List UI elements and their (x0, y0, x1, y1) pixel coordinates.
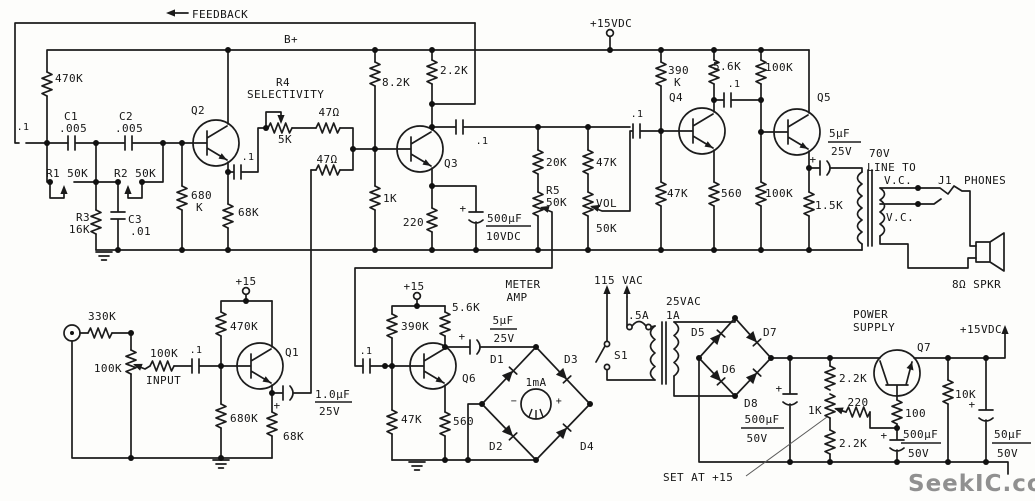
label-cap-q1-in: .1 (190, 345, 203, 356)
label-input: INPUT (146, 374, 181, 387)
label-vol-value: 50K (596, 222, 617, 235)
label-25v-q5: 25V (831, 145, 852, 158)
input-jack-symbol (64, 325, 80, 341)
label-supply: SUPPLY (853, 321, 895, 334)
label-vol: VOL (596, 197, 617, 210)
label-500uf: 500μF (487, 212, 522, 225)
plus15-terminal-q6 (414, 293, 421, 300)
label-47ohm-bottom: 47Ω (316, 153, 337, 166)
label-cap-input: .1 (17, 122, 30, 133)
label-1uf: 1.0μF (315, 388, 350, 401)
label-vc-1: V.C. (884, 174, 912, 187)
label-meter-plus: + (556, 396, 562, 407)
label-c3-value: .01 (130, 225, 151, 238)
label-1ma: 1mA (525, 376, 546, 389)
label-1k-q3: 1K (383, 192, 397, 205)
label-c1-value: .005 (59, 122, 87, 135)
label-100k-pot: 100K (94, 362, 122, 375)
label-d6: D6 (722, 363, 736, 376)
label-fuse: .5A (628, 309, 649, 322)
label-cap-q3-out: .1 (476, 136, 489, 147)
label-r1: R1 50K (46, 167, 88, 180)
feedback-arrow-icon (166, 9, 175, 16)
label-68k-q2: 68K (238, 206, 259, 219)
watermark: SeekIC.com (908, 471, 1035, 497)
transistor-q1-symbol (237, 343, 283, 389)
label-50uf: 50μF (994, 428, 1022, 441)
label-d1: D1 (490, 353, 504, 366)
label-115vac: 115 VAC (594, 274, 643, 287)
label-q4: Q4 (669, 91, 683, 104)
label-220-psu: 220 (847, 396, 868, 409)
label-plus15-q6: +15 (403, 280, 424, 293)
output-transformer-symbol (858, 170, 885, 246)
label-meter-minus: − (511, 396, 517, 407)
label-470k: 470K (55, 72, 83, 85)
label-70v: 70V (869, 147, 890, 160)
label-5-6k-q6: 5.6K (452, 301, 480, 314)
meter-movement-symbol (521, 389, 551, 419)
transistor-q6-symbol (410, 343, 456, 389)
label-560-q4: 560 (721, 187, 742, 200)
label-d2: D2 (489, 440, 503, 453)
power-transformer-symbol (651, 322, 679, 384)
label-50v2: 50V (908, 447, 929, 460)
label-1a: 1A (666, 309, 680, 322)
label-560-q6: 560 (453, 415, 474, 428)
label-cap-q6-in: .1 (360, 346, 373, 357)
label-47ohm-top: 47Ω (318, 106, 339, 119)
label-plus-500uf2: + (880, 429, 887, 442)
label-25v-1uf: 25V (319, 405, 340, 418)
label-5uf-q6: 5μF (492, 314, 513, 327)
label-390k-q6: 390K (401, 320, 429, 333)
label-phones: PHONES (964, 174, 1006, 187)
label-plus15-q1: +15 (235, 275, 256, 288)
label-selectivity: SELECTIVITY (247, 88, 324, 101)
label-1k-psu: 1K (808, 404, 822, 417)
label-r2: R2 50K (114, 167, 156, 180)
label-j1: J1 (938, 174, 952, 187)
label-q6: Q6 (462, 372, 476, 385)
label-20k: 20K (546, 156, 567, 169)
label-feedback: FEEDBACK (192, 8, 248, 21)
label-1-5k: 1.5K (815, 199, 843, 212)
label-cap-q4q5: .1 (728, 79, 741, 90)
transistor-q3-symbol (397, 126, 443, 172)
label-plus-500uf1: + (775, 382, 782, 395)
label-680k-q1: 680K (230, 412, 258, 425)
label-cap-q2: .1 (242, 152, 255, 163)
label-d5: D5 (691, 326, 705, 339)
label-r5-value: 50K (546, 196, 567, 209)
label-b-plus: B+ (284, 33, 298, 46)
label-5uf-q5: 5μF (829, 127, 850, 140)
plus15vdc-terminal (607, 30, 614, 37)
transistor-q2-symbol (193, 120, 239, 166)
label-100k-input: 100K (150, 347, 178, 360)
label-d4: D4 (580, 440, 594, 453)
schematic-canvas: FEEDBACK B+ +15VDC .1 470K C1 .005 C2 .0… (0, 0, 1035, 501)
switch-s1-symbol (604, 341, 609, 369)
label-50v1: 50V (746, 432, 767, 445)
plus15-terminal-q1 (243, 288, 250, 295)
label-set-at: SET AT +15 (663, 471, 733, 484)
label-spkr: 8Ω SPKR (952, 278, 1001, 291)
label-68k-q1: 68K (283, 430, 304, 443)
label-q3: Q3 (444, 157, 458, 170)
label-5k: 5K (278, 133, 292, 146)
label-15vdc-out: +15VDC (960, 323, 1002, 336)
label-plus-5uf-q6: + (458, 330, 465, 343)
labels: FEEDBACK B+ +15VDC .1 470K C1 .005 C2 .0… (17, 8, 1035, 497)
label-amp: AMP (506, 291, 527, 304)
label-470k-q1: 470K (230, 320, 258, 333)
transistor-q5-symbol (774, 109, 820, 155)
label-330k: 330K (88, 310, 116, 323)
label-power: POWER (853, 308, 888, 321)
label-plus-50uf: + (968, 398, 975, 411)
label-8-2k: 8.2K (382, 76, 410, 89)
label-c2-value: .005 (115, 122, 143, 135)
label-d3: D3 (564, 353, 578, 366)
speaker-icon (976, 233, 1004, 271)
transistor-q4-symbol (679, 108, 725, 154)
fuse-symbol (627, 324, 651, 329)
label-15vdc-top: +15VDC (590, 17, 632, 30)
label-q2: Q2 (191, 104, 205, 117)
label-220-q3: 220 (403, 216, 424, 229)
label-plus-1uf: + (273, 399, 280, 412)
label-cap-q4-in: .1 (631, 109, 644, 120)
label-25vac: 25VAC (666, 295, 701, 308)
label-2-2k-top: 2.2K (839, 372, 867, 385)
ground-symbols (96, 252, 425, 470)
label-5-6k-q4: 5.6K (713, 60, 741, 73)
label-line-to: LINE TO (867, 161, 916, 174)
label-2-2k-q3: 2.2K (440, 64, 468, 77)
label-q5: Q5 (817, 91, 831, 104)
plus15vdc-arrow-icon (1001, 325, 1008, 334)
label-47k-vol: 47K (596, 156, 617, 169)
label-d8: D8 (744, 397, 758, 410)
label-100: 100 (905, 407, 926, 420)
label-47k-q4: 47K (667, 187, 688, 200)
label-390-k: K (674, 76, 681, 89)
label-q1: Q1 (285, 346, 299, 359)
label-10vdc: 10VDC (486, 230, 521, 243)
label-q7: Q7 (917, 341, 931, 354)
label-25v-q6: 25V (493, 332, 514, 345)
label-680-k: K (196, 201, 203, 214)
label-plus-500uf: + (459, 202, 466, 215)
label-100k-q5top: 100K (765, 61, 793, 74)
transformers (651, 170, 885, 384)
schematic-page: FEEDBACK B+ +15VDC .1 470K C1 .005 C2 .0… (0, 0, 1035, 501)
label-meter: METER (505, 278, 540, 291)
label-47k-q6: 47K (401, 413, 422, 426)
label-500uf2: 500μF (903, 428, 938, 441)
label-s1: S1 (614, 349, 628, 362)
label-plus-5uf-q5: + (809, 153, 816, 166)
transistor-q7-symbol (874, 350, 920, 396)
label-50v3: 50V (997, 447, 1018, 460)
label-2-2k-bottom: 2.2K (839, 437, 867, 450)
label-500uf1: 500μF (744, 413, 779, 426)
label-vc-2: V.C. (886, 211, 914, 224)
label-r3-value: 16K (69, 223, 90, 236)
label-100k-q5: 100K (765, 187, 793, 200)
label-d7: D7 (763, 326, 777, 339)
